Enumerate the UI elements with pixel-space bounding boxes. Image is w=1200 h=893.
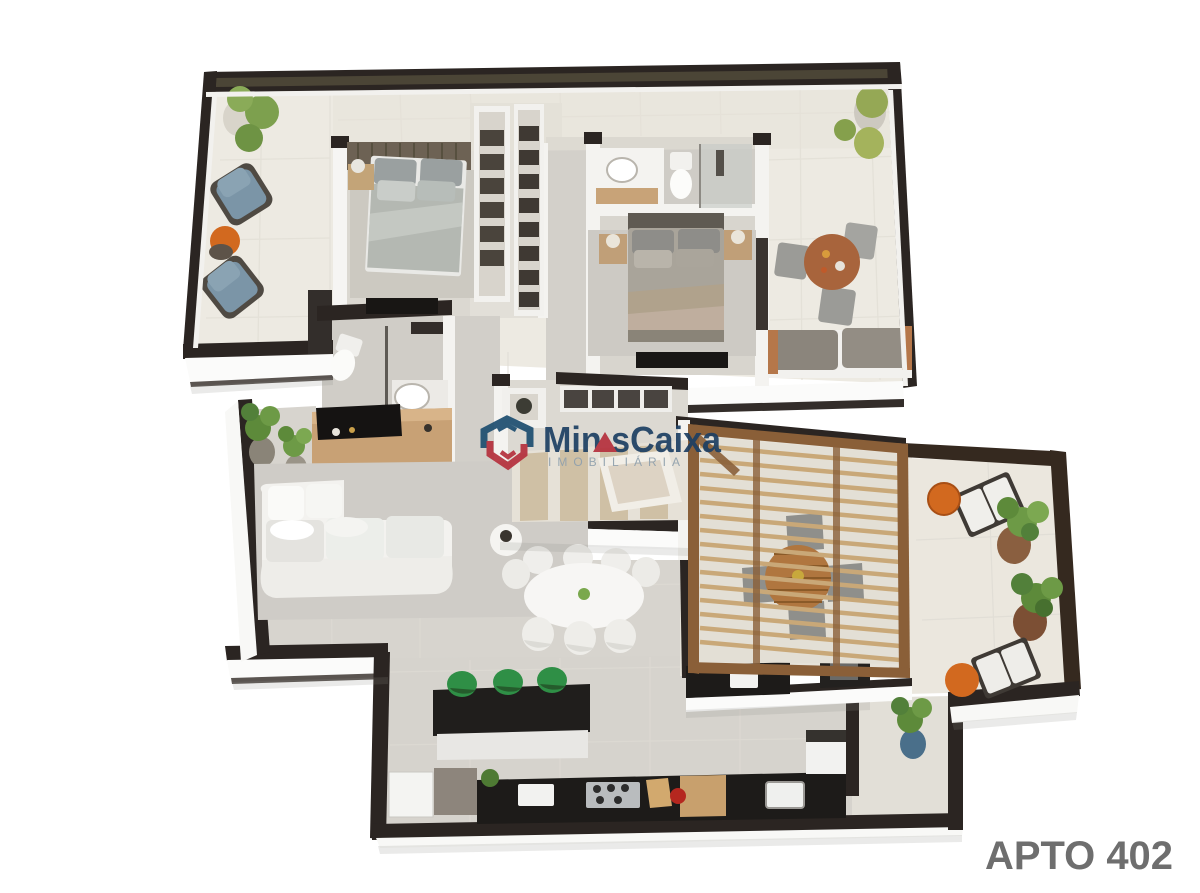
svg-text:Min sCaixa: Min sCaixa [543,419,722,460]
svg-text:IMOBILIÁRIA: IMOBILIÁRIA [548,454,686,469]
svg-text:APTO 402: APTO 402 [985,834,1173,878]
